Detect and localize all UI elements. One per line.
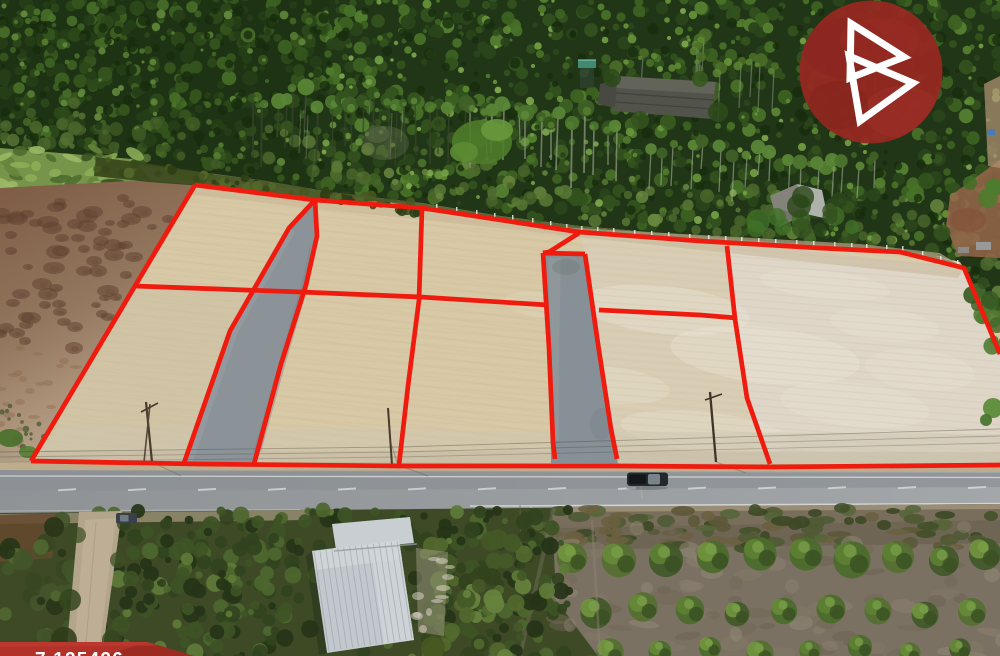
svg-text:7.125426: 7.125426 bbox=[35, 650, 124, 656]
